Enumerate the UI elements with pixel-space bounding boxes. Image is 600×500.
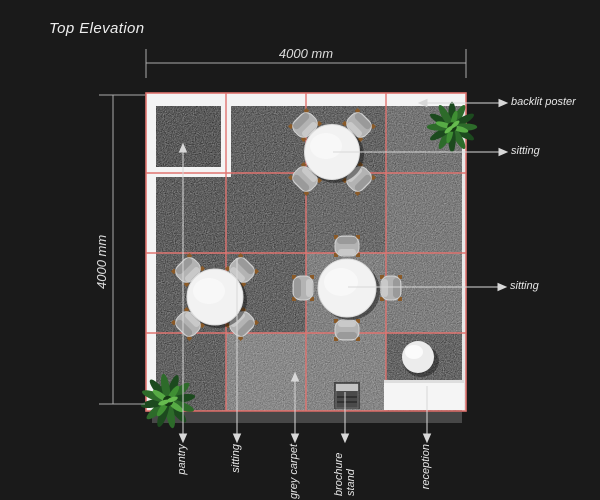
floor-plan-scene	[0, 0, 600, 500]
chair	[292, 275, 314, 301]
label-pantry: pantry	[176, 444, 189, 475]
brochure-stand-object	[334, 382, 360, 409]
label-sitting-top: sitting	[511, 145, 540, 158]
page-title: Top Elevation	[49, 20, 145, 37]
height-dimension-label: 4000 mm	[94, 235, 109, 289]
chair	[334, 235, 360, 257]
chair	[380, 275, 402, 301]
label-reception: reception	[420, 444, 433, 489]
label-sitting-right: sitting	[510, 280, 539, 293]
reception-counter	[384, 380, 464, 410]
floor-edge-shadow	[152, 412, 462, 423]
width-dimension-label: 4000 mm	[236, 46, 376, 61]
label-grey-carpet: grey carpet	[288, 444, 301, 499]
left-wall	[146, 93, 156, 411]
label-brochure-stand: brochure stand	[333, 444, 357, 496]
chair	[334, 319, 360, 341]
label-backlit-poster: backlit poster	[511, 96, 576, 109]
label-sitting-bottom: sitting	[230, 444, 243, 473]
top-elevation-diagram: Top Elevation 4000 mm 4000 mm backlit po…	[0, 0, 600, 500]
pantry-bottom-wall	[146, 167, 231, 177]
